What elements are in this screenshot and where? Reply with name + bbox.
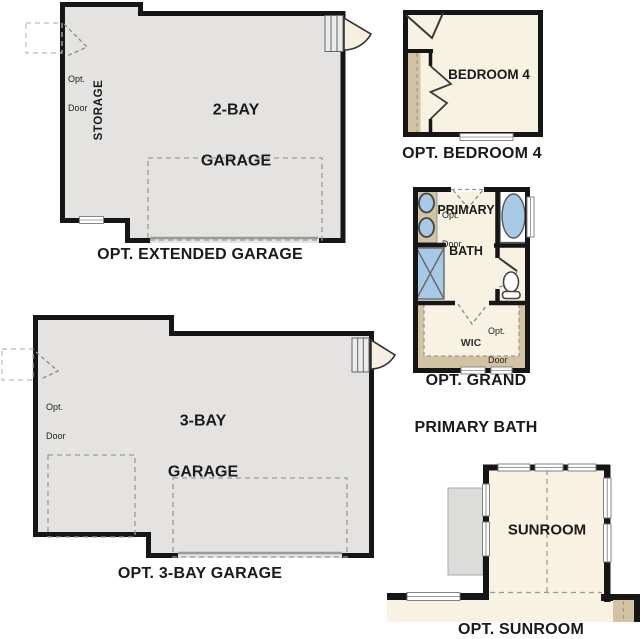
- house-wall: [634, 600, 640, 622]
- bathtub: [500, 190, 528, 243]
- window: [460, 134, 513, 141]
- storage-label: STORAGE: [93, 80, 105, 141]
- sunroom-plan: [387, 464, 640, 622]
- floorplan-options-sheet: STORAGE 2-BAY GARAGE Opt. Door OPT. EXTE…: [0, 0, 640, 639]
- sunroom-caption: OPT. SUNROOM: [458, 621, 584, 639]
- bedroom4-label: BEDROOM 4: [448, 68, 530, 82]
- window: [527, 197, 534, 237]
- opt-door-stoop-outline: [26, 23, 62, 53]
- house-wall: [601, 594, 640, 601]
- house-floor: [387, 600, 613, 622]
- entry-door: [325, 16, 371, 52]
- window: [535, 464, 563, 471]
- window: [407, 593, 460, 601]
- sink: [419, 194, 434, 213]
- window: [483, 522, 490, 556]
- primary-bath-label: PRIMARY BATH: [437, 177, 494, 272]
- patio-slab: [448, 488, 483, 575]
- opt-door-label: Opt. Door: [46, 384, 66, 451]
- extended-garage-caption: OPT. EXTENDED GARAGE: [97, 246, 303, 264]
- primary-bath-caption: OPT. GRAND PRIMARY BATH: [415, 342, 538, 451]
- window: [604, 478, 612, 518]
- entry-door: [352, 338, 395, 372]
- window: [568, 464, 596, 471]
- window: [483, 484, 490, 516]
- window: [498, 464, 530, 471]
- sunroom-label: SUNROOM: [508, 522, 586, 539]
- sink: [419, 218, 434, 237]
- three-bay-garage-caption: OPT. 3-BAY GARAGE: [118, 565, 282, 583]
- bedroom4-caption: OPT. BEDROOM 4: [402, 145, 542, 163]
- window: [604, 524, 612, 562]
- window: [80, 217, 104, 224]
- opt-door-label: Opt. Door: [68, 56, 88, 123]
- opt-door-stoop-outline: [2, 349, 33, 380]
- toilet: [503, 272, 521, 299]
- extended-garage-plan: [26, 4, 371, 243]
- garage-3bay-label: 3-BAY GARAGE: [168, 379, 238, 498]
- garage-2bay-label: 2-BAY GARAGE: [201, 68, 271, 187]
